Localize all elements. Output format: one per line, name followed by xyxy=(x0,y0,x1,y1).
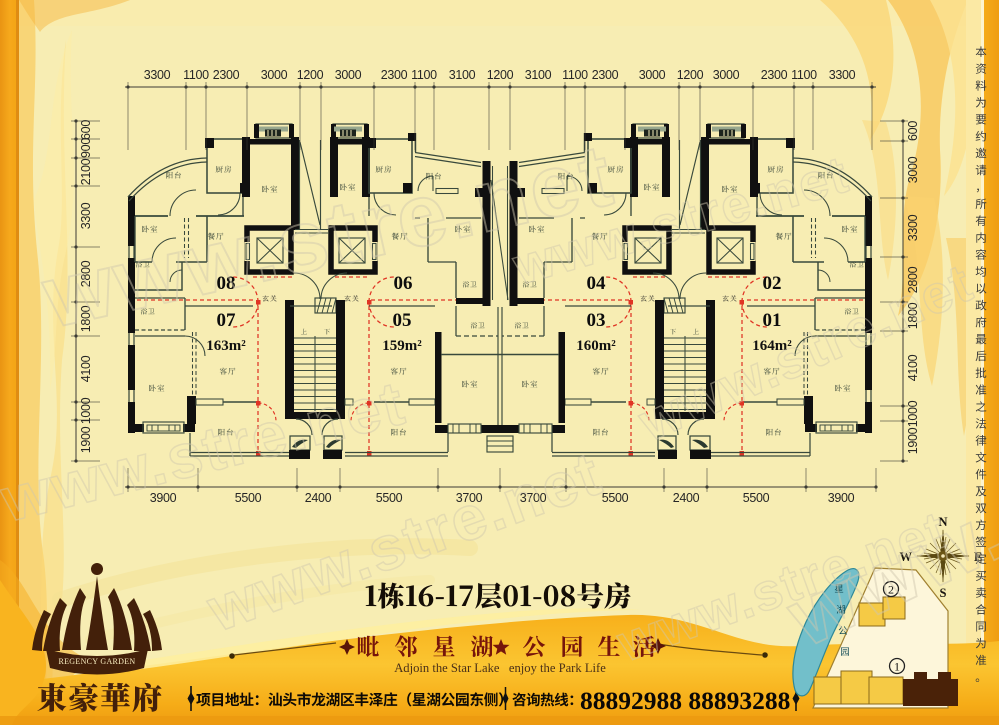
svg-text:1100: 1100 xyxy=(411,68,437,82)
svg-text:02: 02 xyxy=(763,273,782,294)
svg-text:163m²: 163m² xyxy=(206,338,246,354)
svg-text:88892988 88893288: 88892988 88893288 xyxy=(580,686,790,715)
svg-text:3100: 3100 xyxy=(525,68,552,82)
svg-text:1900: 1900 xyxy=(906,427,920,454)
svg-text:3900: 3900 xyxy=(828,491,855,505)
svg-text:2300: 2300 xyxy=(213,68,240,82)
svg-text:06: 06 xyxy=(394,273,413,294)
svg-text:REGENCY GARDEN: REGENCY GARDEN xyxy=(58,657,135,666)
svg-text:1200: 1200 xyxy=(677,68,704,82)
svg-text:1100: 1100 xyxy=(183,68,209,82)
svg-text:1: 1 xyxy=(894,660,900,674)
svg-text:3000: 3000 xyxy=(906,156,920,183)
svg-text:3000: 3000 xyxy=(639,68,666,82)
svg-text:2100: 2100 xyxy=(79,158,93,185)
svg-text:1200: 1200 xyxy=(487,68,514,82)
svg-text:5500: 5500 xyxy=(743,491,770,505)
svg-text:3100: 3100 xyxy=(449,68,476,82)
svg-text:2400: 2400 xyxy=(673,491,700,505)
svg-text:1000: 1000 xyxy=(906,400,920,427)
svg-text:600: 600 xyxy=(79,120,93,140)
svg-text:3300: 3300 xyxy=(906,214,920,241)
svg-text:3000: 3000 xyxy=(335,68,362,82)
svg-text:5500: 5500 xyxy=(235,491,262,505)
svg-text:3300: 3300 xyxy=(79,202,93,229)
svg-text:4100: 4100 xyxy=(906,354,920,381)
svg-text:2400: 2400 xyxy=(305,491,332,505)
svg-text:1000: 1000 xyxy=(79,397,93,424)
svg-text:3300: 3300 xyxy=(829,68,856,82)
svg-text:1100: 1100 xyxy=(562,68,588,82)
svg-text:2300: 2300 xyxy=(381,68,408,82)
svg-text:4100: 4100 xyxy=(79,355,93,382)
svg-text:159m²: 159m² xyxy=(382,338,422,354)
svg-text:2300: 2300 xyxy=(592,68,619,82)
svg-text:600: 600 xyxy=(906,121,920,141)
svg-text:2300: 2300 xyxy=(761,68,788,82)
svg-text:1100: 1100 xyxy=(791,68,817,82)
svg-text:1200: 1200 xyxy=(297,68,324,82)
svg-text:05: 05 xyxy=(393,310,412,331)
svg-text:03: 03 xyxy=(587,310,606,331)
svg-text:3000: 3000 xyxy=(713,68,740,82)
svg-text:07: 07 xyxy=(217,310,237,331)
svg-text:3000: 3000 xyxy=(261,68,288,82)
svg-text:01: 01 xyxy=(763,310,782,331)
svg-text:Adjoin the Star Lake enjoy t: Adjoin the Star Lake enjoy the Park Life xyxy=(394,661,606,675)
svg-text:3300: 3300 xyxy=(144,68,171,82)
svg-text:900: 900 xyxy=(79,138,93,158)
svg-text:160m²: 160m² xyxy=(576,338,616,354)
svg-text:5500: 5500 xyxy=(376,491,403,505)
